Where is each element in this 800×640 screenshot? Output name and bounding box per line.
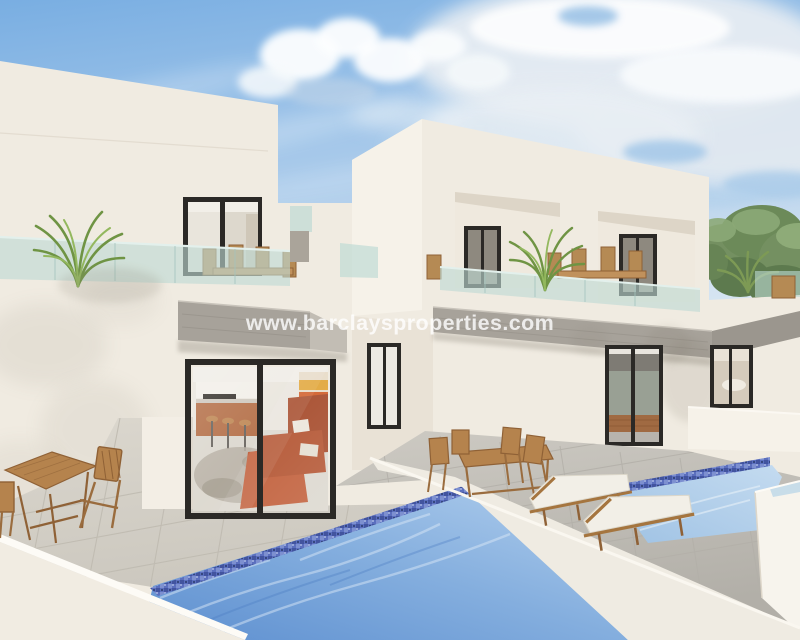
right-bedroom-window (710, 345, 753, 408)
mid-shadow-notch (290, 231, 309, 262)
door-mullion (257, 365, 263, 513)
render-canvas: www.barclaysproperties.com (0, 0, 800, 640)
mid-glass-balustrade (340, 243, 378, 278)
neighbour-chair (772, 276, 795, 298)
mid-glass-sliver (290, 206, 312, 232)
villa-render-image: www.barclaysproperties.com (0, 0, 800, 640)
living-room-sliding-door (188, 362, 333, 516)
watermark-text: www.barclaysproperties.com (245, 311, 554, 335)
palm-shadow (58, 267, 162, 303)
right-patio-door (605, 345, 663, 446)
